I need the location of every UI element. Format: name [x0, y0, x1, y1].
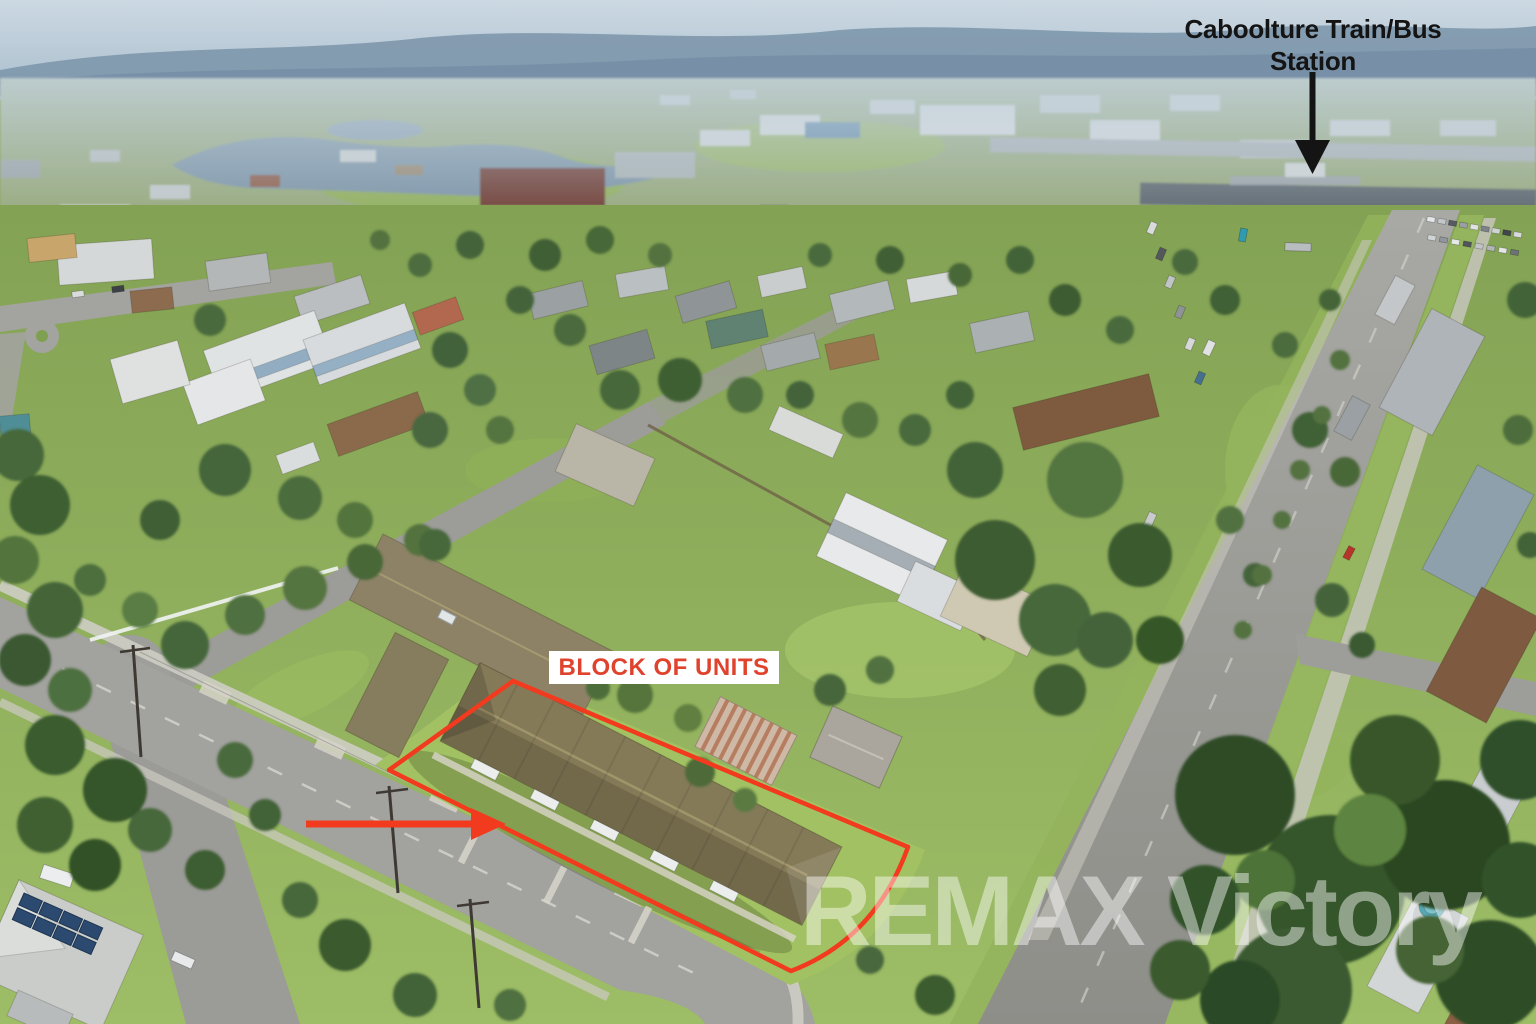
units-label: BLOCK OF UNITS — [549, 651, 779, 684]
watermark: REMAX Victory — [800, 854, 1480, 968]
watermark-text: REMAX Victory — [800, 855, 1480, 966]
aerial-photo-page: Caboolture Train/Bus Station BLOCK OF UN… — [0, 0, 1536, 1024]
station-label: Caboolture Train/Bus Station — [1163, 13, 1463, 77]
units-label-text: BLOCK OF UNITS — [559, 654, 770, 682]
station-label-line1: Caboolture Train/Bus — [1163, 13, 1463, 45]
station-label-line2: Station — [1163, 45, 1463, 77]
